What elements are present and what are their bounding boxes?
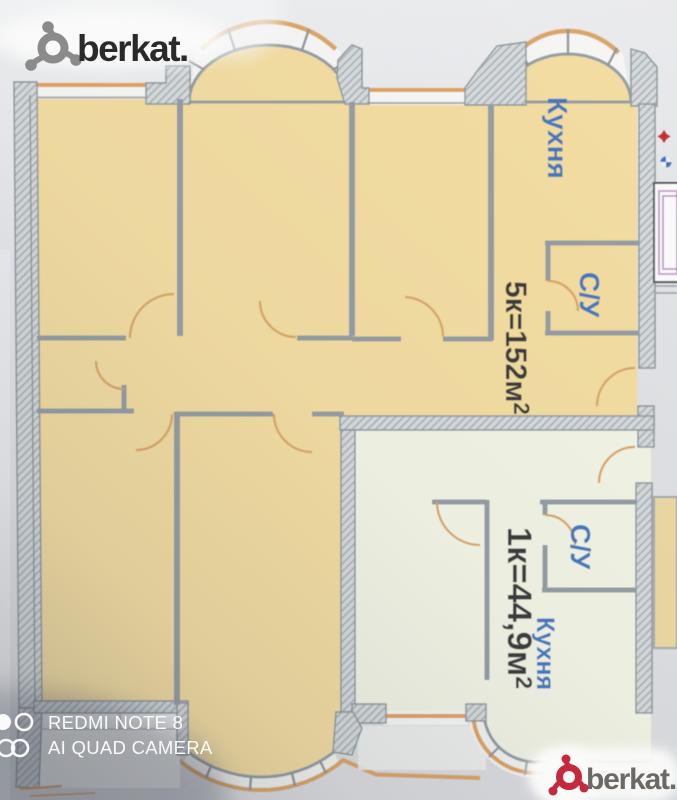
svg-text:AI QUAD CAMERA: AI QUAD CAMERA: [48, 737, 213, 758]
svg-text:berkat.: berkat.: [77, 28, 188, 69]
svg-text:berkat.: berkat.: [586, 763, 676, 796]
svg-text:REDMI NOTE 8: REDMI NOTE 8: [48, 712, 183, 733]
